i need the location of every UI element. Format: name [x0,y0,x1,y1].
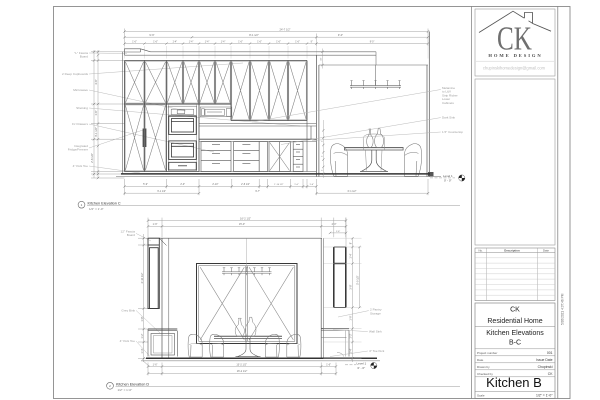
svg-text:Project number: Project number [477,351,497,355]
svg-text:1'-6": 1'-6" [94,110,98,115]
svg-text:1'-9": 1'-9" [153,223,158,226]
svg-text:13'-2 1/2": 13'-2 1/2" [236,363,247,366]
svg-text:Fridge/Freezer: Fridge/Freezer [68,148,88,152]
svg-text:9'-0": 9'-0" [370,42,375,44]
svg-text:1'-6": 1'-6" [326,363,331,366]
svg-text:1'-6": 1'-6" [238,42,243,44]
svg-text:Kitchen Elevation C: Kitchen Elevation C [88,201,121,205]
svg-text:Dark Sink: Dark Sink [442,116,456,120]
svg-text:8": 8" [349,242,353,244]
svg-text:4" Toe Kick: 4" Toe Kick [369,349,385,353]
svg-text:4'-10 1/2": 4'-10 1/2" [140,272,144,283]
svg-text:2'-0": 2'-0" [180,183,185,186]
svg-text:9'-6": 9'-6" [149,33,154,37]
svg-text:1'-6": 1'-6" [153,363,158,366]
svg-text:001: 001 [547,351,553,355]
svg-text:2'-8 1/2": 2'-8 1/2" [241,183,250,186]
svg-text:1/2" = 1'-0": 1/2" = 1'-0" [118,388,133,392]
svg-text:Residential Home: Residential Home [487,318,542,325]
svg-text:Kitchen Elevations: Kitchen Elevations [486,330,544,337]
svg-text:CK: CK [497,20,532,58]
svg-text:0' - 0": 0' - 0" [444,178,452,182]
svg-text:1'-4": 1'-4" [172,42,177,44]
svg-text:4" Kick Toe: 4" Kick Toe [73,164,89,168]
svg-text:2'-10": 2'-10" [212,183,218,186]
svg-text:2'-6 1/2": 2'-6 1/2" [90,153,94,163]
svg-text:4'-1 1/2": 4'-1 1/2" [94,127,98,137]
svg-text:1'-6": 1'-6" [295,42,300,44]
svg-text:1'-2": 1'-2" [349,333,353,338]
svg-text:1/2" = 1'-0": 1/2" = 1'-0" [89,207,104,211]
svg-text:Grey Bink: Grey Bink [121,308,135,312]
svg-text:HOME DESIGN: HOME DESIGN [488,53,542,58]
svg-text:15'-0": 15'-0" [239,223,245,226]
svg-text:CK: CK [510,307,520,314]
svg-text:16'-2 1/2": 16'-2 1/2" [240,216,251,220]
svg-text:24'-7 1/2": 24'-7 1/2" [280,27,291,31]
svg-text:1'-10 1/2": 1'-10 1/2" [274,184,283,186]
svg-text:Microwave: Microwave [73,88,88,92]
svg-text:Date: Date [543,249,549,253]
svg-text:Scale: Scale [477,394,485,398]
svg-text:Cabinets: Cabinets [442,101,454,105]
svg-text:1'-4": 1'-4" [349,253,353,258]
svg-text:No.: No. [479,249,484,253]
svg-text:0' - 0": 0' - 0" [358,366,366,370]
svg-text:1'-6": 1'-6" [276,42,281,44]
svg-text:3'-8": 3'-8" [349,284,353,289]
svg-text:6'-1 1/2": 6'-1 1/2" [157,190,166,193]
svg-text:1'-0": 1'-0" [310,184,315,186]
svg-text:1'-2": 1'-2" [140,333,144,338]
svg-text:Wall Sink: Wall Sink [369,330,382,334]
svg-text:1.5" Countertop: 1.5" Countertop [442,130,463,134]
svg-text:10": 10" [321,57,323,60]
svg-text:5'-9": 5'-9" [143,183,148,186]
svg-text:1'-0": 1'-0" [294,184,299,186]
svg-text:5'-0 1/2": 5'-0 1/2" [356,275,360,285]
svg-text:1'-9": 1'-9" [349,315,353,320]
svg-text:Issue Date: Issue Date [536,358,552,362]
svg-text:5/26/2021 4:37:46 PM: 5/26/2021 4:37:46 PM [561,293,565,325]
svg-text:Storage: Storage [370,311,381,315]
svg-text:Description: Description [504,249,520,253]
svg-text:Board: Board [80,55,89,59]
svg-text:1/2" = 1'-0": 1/2" = 1'-0" [536,394,553,398]
svg-text:1'-4": 1'-4" [205,42,210,44]
svg-text:B-C: B-C [509,340,521,347]
svg-text:Date: Date [477,358,484,362]
svg-text:Chupinski: Chupinski [538,365,553,369]
svg-text:8'-1 1/2": 8'-1 1/2" [249,33,259,37]
svg-text:4" Kick Toe: 4" Kick Toe [120,339,136,343]
svg-text:Shelving: Shelving [76,106,88,110]
svg-text:Kitchen B: Kitchen B [486,375,542,390]
svg-text:chupinskihomedesign@gmail.com: chupinskihomedesign@gmail.com [483,66,546,71]
svg-text:1'-6": 1'-6" [336,231,341,233]
svg-text:2 Deep Cupboards: 2 Deep Cupboards [62,72,88,76]
svg-text:6'-1 1/2": 6'-1 1/2" [348,190,357,193]
svg-text:1'-4": 1'-4" [349,348,353,353]
svg-text:1'-6": 1'-6" [153,42,158,44]
svg-text:9": 9" [311,42,313,44]
svg-text:1'-4": 1'-4" [221,42,226,44]
svg-text:1'-6": 1'-6" [257,42,262,44]
svg-text:Drawn by: Drawn by [477,365,490,369]
svg-text:1'-4": 1'-4" [189,42,194,44]
svg-text:9'-0": 9'-0" [338,33,343,37]
svg-text:16'-2 1/2": 16'-2 1/2" [237,370,248,373]
svg-text:Fz Drawers: Fz Drawers [72,122,88,126]
svg-text:2'-0": 2'-0" [332,223,337,226]
svg-text:9'-7": 9'-7" [255,190,260,193]
svg-text:1'-6": 1'-6" [132,42,137,44]
svg-text:3'-6": 3'-6" [94,79,98,84]
svg-text:CK: CK [548,372,553,376]
svg-text:Board: Board [127,233,136,237]
svg-text:Kitchen Elevation D: Kitchen Elevation D [116,382,149,386]
